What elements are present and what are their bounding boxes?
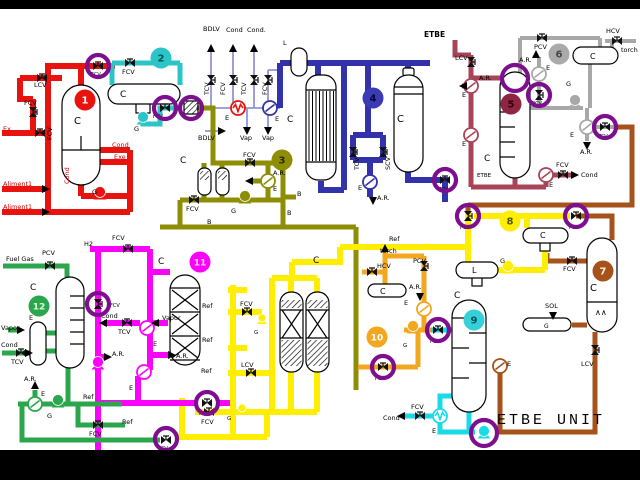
diagram-label: Cond	[1, 341, 18, 349]
diagram-label: E	[404, 299, 408, 307]
pump-icon	[407, 321, 420, 334]
diagram-label: Aliment1	[3, 203, 32, 211]
annotation-rings-layer	[87, 55, 616, 450]
diagram-label: LCV	[455, 54, 468, 62]
heat-exchanger-icon	[363, 175, 377, 189]
diagram-label: C	[287, 115, 293, 125]
pump-icon	[52, 395, 65, 408]
unit-badge-number: 2	[158, 54, 165, 65]
unit-badge-number: 6	[556, 50, 563, 61]
diagram-label: TCV	[117, 328, 131, 336]
flow-arrow-right-icon	[104, 353, 112, 361]
diagram-label: A.R.	[580, 148, 593, 156]
diagram-label: Cond.	[247, 26, 266, 34]
pump-casing	[408, 321, 419, 332]
diagram-label: E	[29, 314, 33, 322]
flow-arrow-down-icon	[369, 197, 377, 205]
diagram-label: H2	[84, 240, 93, 248]
diagram-label: FCV	[110, 303, 120, 309]
tubular-reactor-4	[306, 75, 336, 180]
diagram-label: FCV	[556, 161, 569, 169]
diagram-label: FCV	[24, 99, 37, 107]
control-valve-icon	[125, 59, 135, 67]
diagram-label: E	[358, 184, 362, 192]
control-valve-icon	[591, 345, 599, 355]
diagram-label: HCV	[377, 262, 391, 270]
pump-icon	[137, 112, 150, 125]
diagram-label: G	[403, 343, 407, 349]
diagram-label: C	[120, 90, 126, 100]
unit-badge: 8	[500, 211, 521, 232]
diagram-label: Vap	[262, 134, 274, 142]
diagram-label: FCV	[186, 205, 199, 213]
unit-badge-number: 7	[600, 267, 607, 278]
heat-exchanger-icon	[539, 168, 553, 182]
diagram-label: Aliment1	[3, 180, 32, 188]
diagram-label: G	[231, 207, 236, 215]
diagram-label: C	[540, 231, 546, 240]
diagram-label: BDLV	[198, 134, 215, 142]
video-frame: ExLCVFCVFCVCCondExeGAliment1Aliment1Cond…	[0, 0, 640, 480]
diagram-label: A.R.	[24, 375, 37, 383]
diagram-label: A.R.	[176, 352, 189, 360]
heat-exchanger-icon	[231, 101, 245, 115]
adsorber-A	[280, 292, 303, 372]
diagram-label: C	[74, 116, 81, 127]
adsorber-B	[306, 292, 329, 372]
letterbox-bar-top	[0, 0, 640, 9]
pump-icon	[569, 95, 582, 108]
diagram-label: Ref	[202, 302, 213, 310]
diagram-label: G	[227, 416, 231, 422]
diagram-label: FCV	[261, 82, 269, 95]
diagram-label: G	[500, 257, 505, 265]
drum-8-L	[456, 262, 498, 286]
diagram-label: Ex	[3, 125, 11, 133]
unit-badge: 12	[29, 296, 50, 317]
control-valve-icon	[433, 326, 443, 334]
diagram-label: Cond	[581, 171, 598, 179]
control-valve-icon	[189, 196, 199, 204]
diagram-label: FCV	[112, 234, 125, 242]
diagram-label: B	[297, 190, 301, 198]
unit-badge: 6	[549, 44, 570, 65]
diagram-label: LCV	[241, 361, 254, 369]
unit-badge: 5	[501, 94, 522, 115]
unit-badge-number: 10	[371, 334, 384, 344]
diagram-label: Vapor	[1, 324, 20, 332]
diagram-label: G	[544, 323, 549, 330]
diagram-label: E	[462, 91, 466, 99]
pump-icon	[237, 404, 247, 414]
diagram-label: C	[454, 291, 460, 301]
pump-casing	[240, 191, 251, 202]
diagram-label: PCV	[534, 43, 547, 51]
pump-casing	[238, 404, 246, 412]
diagram-label: E	[432, 427, 436, 435]
control-valve-icon	[161, 436, 171, 444]
control-valve-icon	[567, 257, 577, 265]
unit-badge-number: 1	[82, 96, 89, 107]
diagram-label: Cond	[112, 141, 129, 149]
heat-exchanger-icon	[263, 101, 277, 115]
diagram-label: B	[287, 209, 291, 217]
diagram-label: E	[570, 131, 574, 139]
diagram-label: FCV	[122, 68, 135, 76]
diagram-label: E	[273, 185, 277, 193]
flow-arrow-up-icon	[250, 44, 258, 52]
control-valve-icon	[612, 37, 622, 45]
unit-badge: 4	[363, 88, 384, 109]
diagram-label: E	[225, 114, 229, 122]
unit-badge: 2	[151, 48, 172, 69]
diagram-label: Vapor	[162, 314, 181, 322]
column-12	[56, 277, 84, 368]
flow-arrow-left-icon	[245, 177, 253, 185]
diagram-label: HCV	[606, 27, 620, 35]
heat-exchanger-icon	[433, 409, 447, 423]
heat-exchanger-icon	[28, 397, 42, 411]
diagram-label: FCV	[201, 418, 214, 426]
diagram-label: FCV	[219, 82, 227, 95]
diagram-label: A.R.	[519, 56, 532, 64]
diagram-label: ETBE	[477, 173, 492, 179]
diagram-label: PCV	[413, 257, 426, 265]
unit-badge: 9	[464, 310, 485, 331]
diagram-label: Cond	[383, 414, 400, 422]
pump-icon	[257, 314, 267, 324]
diagram-label: C	[380, 287, 386, 296]
pipe-yellow	[177, 211, 570, 437]
pump-casing	[258, 314, 266, 322]
diagram-label: Fuel Gas	[6, 255, 34, 263]
control-valve-icon	[415, 412, 425, 420]
control-valve-icon	[202, 399, 212, 407]
control-valve-icon	[571, 212, 581, 220]
unit-badge: 11	[190, 252, 211, 273]
diagram-label: ETBE	[424, 30, 445, 39]
diagram-label: C	[313, 256, 319, 266]
unit-badge: 1	[75, 90, 96, 111]
diagram-label: FCV	[46, 127, 54, 140]
diagram-label: FCV	[243, 151, 256, 159]
flow-arrow-up-icon	[207, 44, 215, 52]
diagram-label: E	[546, 64, 550, 72]
diagram-label: PCV	[42, 249, 55, 257]
pump-casing	[570, 95, 581, 106]
diagram-label: C	[590, 52, 596, 61]
diagram-label: TCV	[240, 82, 248, 96]
diagram-label: C	[180, 156, 186, 166]
process-flow-diagram: ExLCVFCVFCVCCondExeGAliment1Aliment1Cond…	[0, 0, 640, 480]
control-valve-icon	[367, 268, 377, 276]
diagram-label: SOL	[545, 302, 558, 310]
diagram-label: Ref	[122, 418, 133, 426]
diagram-label: Cond	[226, 26, 243, 34]
diagram-label: G	[566, 80, 571, 88]
diagram-title: ETBE UNIT	[497, 412, 605, 429]
unit-badge: 7	[593, 261, 614, 282]
diagram-label: FCV	[89, 430, 102, 438]
reactors-3	[198, 168, 229, 195]
diagram-label: B	[207, 218, 211, 226]
unit-badge-number: 4	[370, 94, 377, 105]
diagram-label: Cond	[63, 167, 71, 184]
diagram-label: E	[549, 181, 553, 189]
diagram-label: G	[92, 188, 97, 196]
unit-badge: 3	[272, 150, 293, 171]
control-valve-icon	[45, 262, 55, 270]
diagram-label: C	[590, 283, 597, 294]
diagram-label: ∧∧	[595, 308, 607, 317]
flow-arrow-up-icon	[532, 50, 540, 58]
control-valve-icon	[535, 90, 543, 100]
unit-badge-number: 11	[194, 259, 207, 269]
diagram-label: Exe	[114, 153, 126, 161]
pump-icon	[239, 191, 252, 204]
diagram-label: E	[275, 115, 279, 123]
diagram-label: Ref	[389, 235, 400, 243]
heat-exchanger-icon	[417, 302, 431, 316]
diagram-label: A.R.	[377, 194, 390, 202]
diagram-label: C	[484, 154, 490, 164]
unit-badge-number: 8	[507, 217, 514, 228]
control-valve-icon	[467, 57, 475, 67]
unit-badge-number: 9	[471, 316, 478, 327]
diagram-label: G	[47, 412, 52, 420]
diagram-label: A.R.	[479, 74, 492, 82]
diagram-label: C	[158, 257, 164, 267]
pump-casing	[53, 395, 64, 406]
diagram-label: Ref	[83, 393, 94, 401]
control-valve-icon	[537, 34, 547, 42]
diagram-label: L	[283, 39, 287, 47]
heat-exchanger-icon	[137, 365, 151, 379]
flow-arrow-left-icon	[459, 82, 467, 90]
pump-casing	[93, 357, 104, 368]
diagram-label: TCV	[10, 358, 24, 366]
control-valve-icon	[600, 123, 610, 131]
diagram-label: TCV	[203, 82, 211, 96]
heat-exchanger-icon	[532, 67, 546, 81]
inline-mixer-block	[184, 101, 198, 114]
unit-badge-number: 5	[508, 100, 515, 111]
control-valve-icon	[245, 159, 255, 167]
pump-casing	[138, 112, 149, 123]
unit-badge: 10	[367, 327, 388, 348]
control-valve-icon	[378, 363, 388, 371]
unit-badge-number: 3	[279, 156, 286, 167]
control-valve-icon	[558, 171, 568, 179]
diagram-label: Ref	[202, 336, 213, 344]
diagram-label: C	[30, 283, 36, 293]
diagram-label: Vap	[240, 134, 252, 142]
diagram-label: SCV	[384, 156, 392, 170]
diagram-label: E	[41, 390, 45, 398]
diagram-label: BDLV	[203, 25, 220, 33]
diagram-label: E	[153, 340, 157, 348]
diagram-label: C	[397, 114, 404, 125]
pump-casing	[479, 426, 490, 437]
heat-exchanger-icon	[493, 359, 507, 373]
diagram-label: E	[129, 384, 133, 392]
letterbox-bar-bottom	[0, 450, 640, 480]
diagram-label: E	[462, 140, 466, 148]
diagram-label: L	[472, 266, 477, 275]
diagram-label: A.R.	[409, 283, 422, 291]
diagram-label: FCV	[240, 300, 253, 308]
diagram-label: G	[254, 330, 258, 336]
reboiler-vessel-12	[30, 322, 46, 365]
pump-icon	[478, 426, 491, 439]
diagram-label: LCV	[581, 360, 594, 368]
diagram-label: E	[507, 360, 511, 368]
diagram-label: torch	[380, 247, 397, 255]
control-valve-icon	[250, 75, 258, 85]
flare-drum-10	[368, 284, 406, 297]
flow-arrow-up-icon	[229, 44, 237, 52]
diagram-label: LCV	[34, 81, 47, 89]
unit-badge-number: 12	[33, 303, 46, 313]
diagram-label: torch	[621, 46, 638, 54]
control-valve-icon	[229, 75, 237, 85]
diagram-label: G	[134, 125, 139, 133]
flash-pot-L	[291, 48, 307, 76]
diagram-label: FCV	[563, 265, 576, 273]
diagram-label: Ref	[201, 367, 212, 375]
flow-arrow-right-icon	[218, 127, 226, 135]
control-valve-icon	[16, 349, 26, 357]
flow-arrow-right-icon	[571, 171, 579, 179]
diagram-label: FCV	[411, 403, 424, 411]
diagram-label: TCV	[353, 157, 361, 171]
pump-icon	[92, 357, 105, 370]
diagram-label: A.R.	[112, 350, 125, 358]
